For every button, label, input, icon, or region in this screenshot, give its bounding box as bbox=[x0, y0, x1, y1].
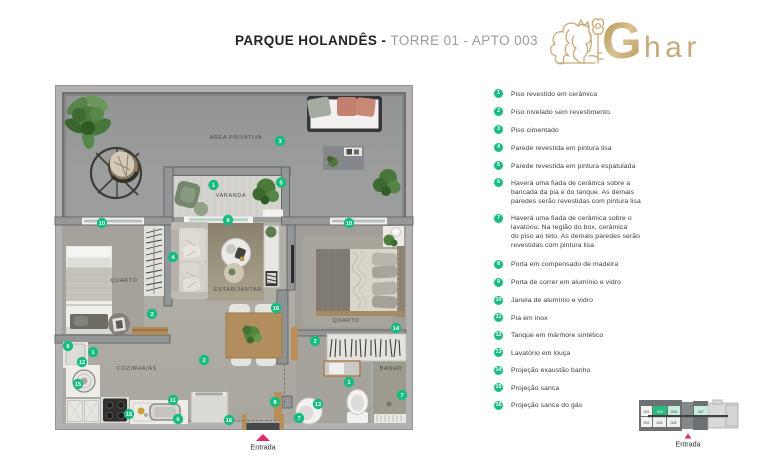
svg-text:Entrada: Entrada bbox=[675, 440, 700, 449]
svg-text:002: 002 bbox=[644, 421, 650, 425]
svg-text:9: 9 bbox=[226, 218, 229, 224]
svg-text:BANHO: BANHO bbox=[380, 366, 403, 372]
svg-text:1: 1 bbox=[91, 350, 94, 356]
svg-text:QUARTO: QUARTO bbox=[332, 318, 359, 324]
svg-text:001: 001 bbox=[644, 410, 650, 414]
svg-text:3: 3 bbox=[278, 139, 281, 145]
svg-text:003: 003 bbox=[657, 410, 663, 414]
svg-text:11: 11 bbox=[170, 398, 176, 404]
svg-text:16: 16 bbox=[273, 306, 279, 312]
svg-text:VARANDA: VARANDA bbox=[216, 193, 247, 199]
svg-text:COZINHA/AS: COZINHA/AS bbox=[117, 366, 157, 372]
svg-text:16: 16 bbox=[226, 418, 232, 424]
svg-text:006: 006 bbox=[671, 421, 677, 425]
svg-text:10: 10 bbox=[99, 221, 105, 227]
svg-text:ÁREA PRIVATIVA: ÁREA PRIVATIVA bbox=[210, 134, 263, 141]
svg-text:2: 2 bbox=[313, 339, 316, 345]
svg-text:2: 2 bbox=[150, 312, 153, 318]
svg-text:14: 14 bbox=[393, 326, 400, 332]
svg-text:004: 004 bbox=[657, 421, 663, 425]
svg-text:007: 007 bbox=[698, 410, 704, 414]
svg-text:12: 12 bbox=[79, 360, 85, 366]
svg-text:2: 2 bbox=[202, 358, 205, 364]
svg-text:1: 1 bbox=[212, 183, 215, 189]
svg-text:13: 13 bbox=[315, 402, 321, 408]
svg-text:ESTAR/JANTAR: ESTAR/JANTAR bbox=[214, 287, 262, 293]
svg-text:1: 1 bbox=[347, 380, 350, 386]
svg-text:5: 5 bbox=[279, 181, 282, 187]
svg-text:15: 15 bbox=[126, 412, 132, 418]
svg-text:15: 15 bbox=[75, 382, 81, 388]
svg-text:10: 10 bbox=[346, 221, 352, 227]
svg-text:7: 7 bbox=[297, 416, 300, 422]
svg-text:7: 7 bbox=[400, 393, 403, 399]
svg-text:6: 6 bbox=[176, 417, 179, 423]
svg-text:8: 8 bbox=[273, 400, 276, 406]
svg-text:005: 005 bbox=[671, 410, 677, 414]
svg-text:QUARTO: QUARTO bbox=[110, 278, 137, 284]
svg-text:Entrada: Entrada bbox=[250, 443, 275, 452]
svg-text:6: 6 bbox=[66, 344, 69, 350]
